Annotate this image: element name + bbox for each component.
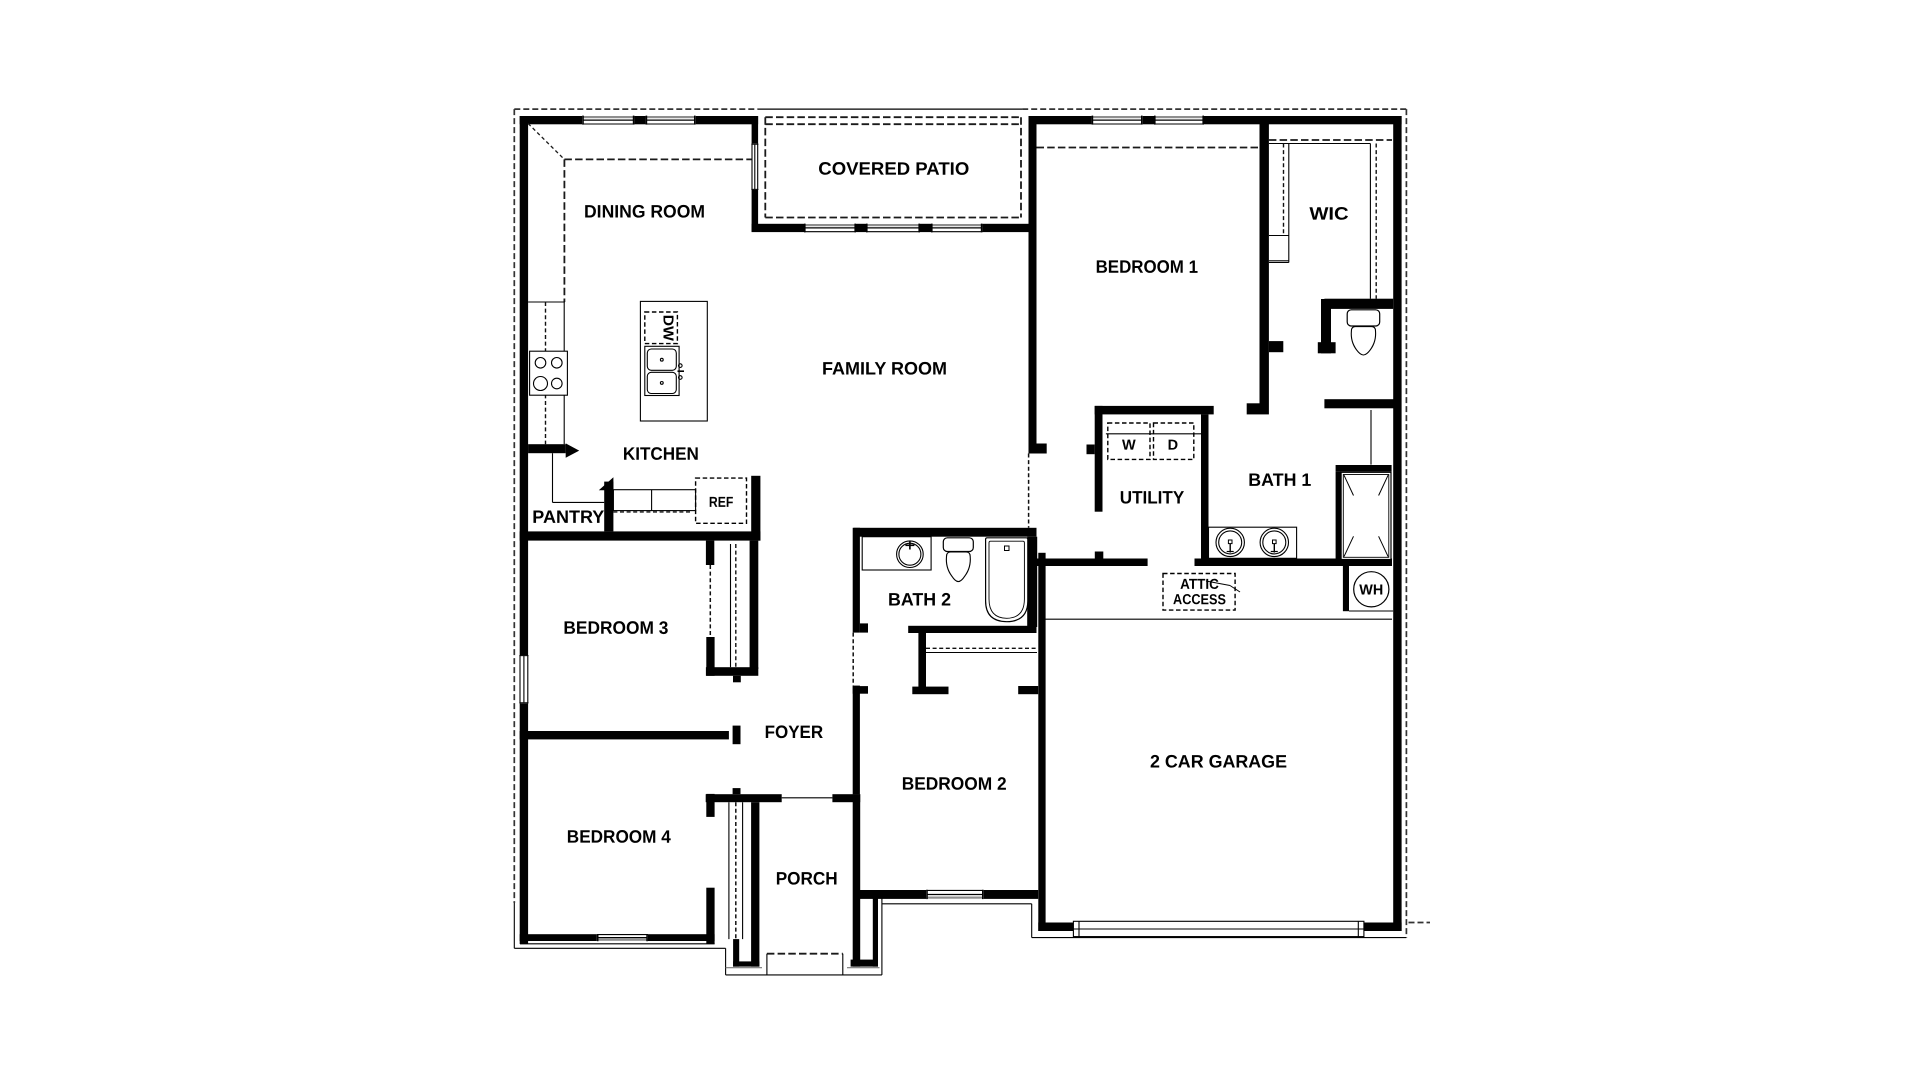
svg-text:REF: REF	[709, 495, 734, 511]
svg-text:BEDROOM 4: BEDROOM 4	[567, 827, 671, 847]
svg-text:KITCHEN: KITCHEN	[623, 444, 699, 464]
svg-text:DINING ROOM: DINING ROOM	[584, 201, 705, 221]
svg-text:BEDROOM 3: BEDROOM 3	[563, 618, 668, 638]
svg-text:WIC: WIC	[1309, 204, 1348, 224]
svg-text:ACCESS: ACCESS	[1173, 592, 1226, 608]
svg-text:ATTIC: ATTIC	[1180, 577, 1219, 593]
svg-text:D: D	[1168, 438, 1178, 454]
svg-text:UTILITY: UTILITY	[1120, 487, 1185, 507]
svg-text:PORCH: PORCH	[776, 868, 838, 888]
svg-text:WH: WH	[1359, 582, 1383, 598]
svg-text:FAMILY ROOM: FAMILY ROOM	[822, 358, 947, 378]
svg-text:PANTRY: PANTRY	[532, 507, 604, 527]
svg-text:BEDROOM 1: BEDROOM 1	[1096, 257, 1198, 277]
svg-text:COVERED PATIO: COVERED PATIO	[818, 159, 969, 179]
svg-text:FOYER: FOYER	[765, 722, 824, 742]
svg-text:BATH 1: BATH 1	[1248, 470, 1311, 490]
svg-text:BATH 2: BATH 2	[888, 589, 951, 609]
svg-text:BEDROOM 2: BEDROOM 2	[902, 774, 1007, 794]
svg-text:2 CAR GARAGE: 2 CAR GARAGE	[1150, 751, 1287, 771]
svg-text:DW: DW	[660, 315, 676, 341]
svg-text:W: W	[1122, 438, 1136, 454]
